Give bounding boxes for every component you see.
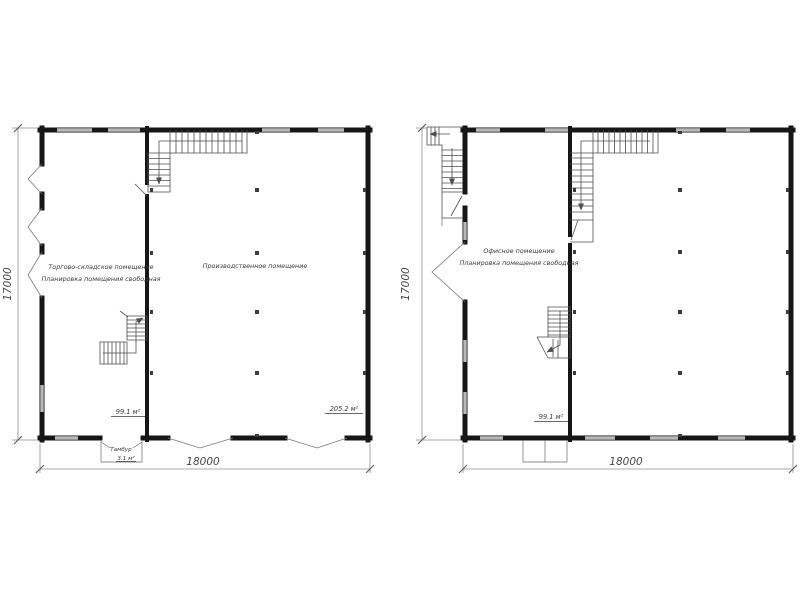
dimensions-left-plan: 17000 18000 xyxy=(2,124,374,473)
staircase-top-left-plan xyxy=(135,130,247,196)
staircase-top-right-plan xyxy=(570,130,658,242)
floor-plans-canvas: Тамбур 3.1 м² Торгово-складское помещени… xyxy=(0,0,800,600)
exterior-staircase xyxy=(427,127,463,226)
room2-name: Производственное помещение xyxy=(203,262,308,270)
height-dimension-left: 17000 xyxy=(2,267,14,301)
height-dimension-right: 17000 xyxy=(400,267,412,301)
columns-right-plan xyxy=(573,131,789,437)
windows-right-plan xyxy=(465,130,750,438)
room1-name-line2: Планировка помещения свободная xyxy=(41,275,160,283)
vestibule-area-label: 3.1 м² xyxy=(117,455,135,462)
staircase-mid-right-plan xyxy=(537,307,570,358)
width-dimension-right: 18000 xyxy=(609,456,643,468)
door-chevron-left-wall-right-plan xyxy=(432,242,465,302)
room-labels-right-plan: Офисное помещение Планировка помещения с… xyxy=(459,247,578,422)
staircase-mid-left-plan xyxy=(100,311,147,364)
floor-plan-left: Тамбур 3.1 м² Торгово-складское помещени… xyxy=(2,124,374,473)
vestibule: Тамбур 3.1 м² xyxy=(101,440,142,462)
office-room-area-label: 99.1 м² xyxy=(539,413,564,421)
vestibule-label: Тамбур xyxy=(110,447,132,453)
room-labels-left-plan: Торгово-складское помещение Планировка п… xyxy=(41,262,363,417)
room1-name-line1: Торгово-складское помещение xyxy=(48,263,153,271)
office-room-name-line2: Планировка помещения свободная xyxy=(459,259,578,267)
porch xyxy=(523,440,567,462)
walls-right-plan xyxy=(463,128,793,440)
room2-area-label: 205.2 м² xyxy=(330,405,359,413)
room1-area-label: 99.1 м² xyxy=(116,408,141,416)
windows-left-plan xyxy=(42,130,344,438)
floor-plan-right: Офисное помещение Планировка помещения с… xyxy=(400,124,797,473)
columns-left-plan xyxy=(150,131,366,437)
walls-left-plan xyxy=(40,128,370,440)
office-room-name-line1: Офисное помещение xyxy=(483,247,554,255)
door-chevrons-left-wall xyxy=(28,164,42,298)
width-dimension-left: 18000 xyxy=(186,456,220,468)
dimensions-right-plan: 17000 18000 xyxy=(400,124,797,473)
